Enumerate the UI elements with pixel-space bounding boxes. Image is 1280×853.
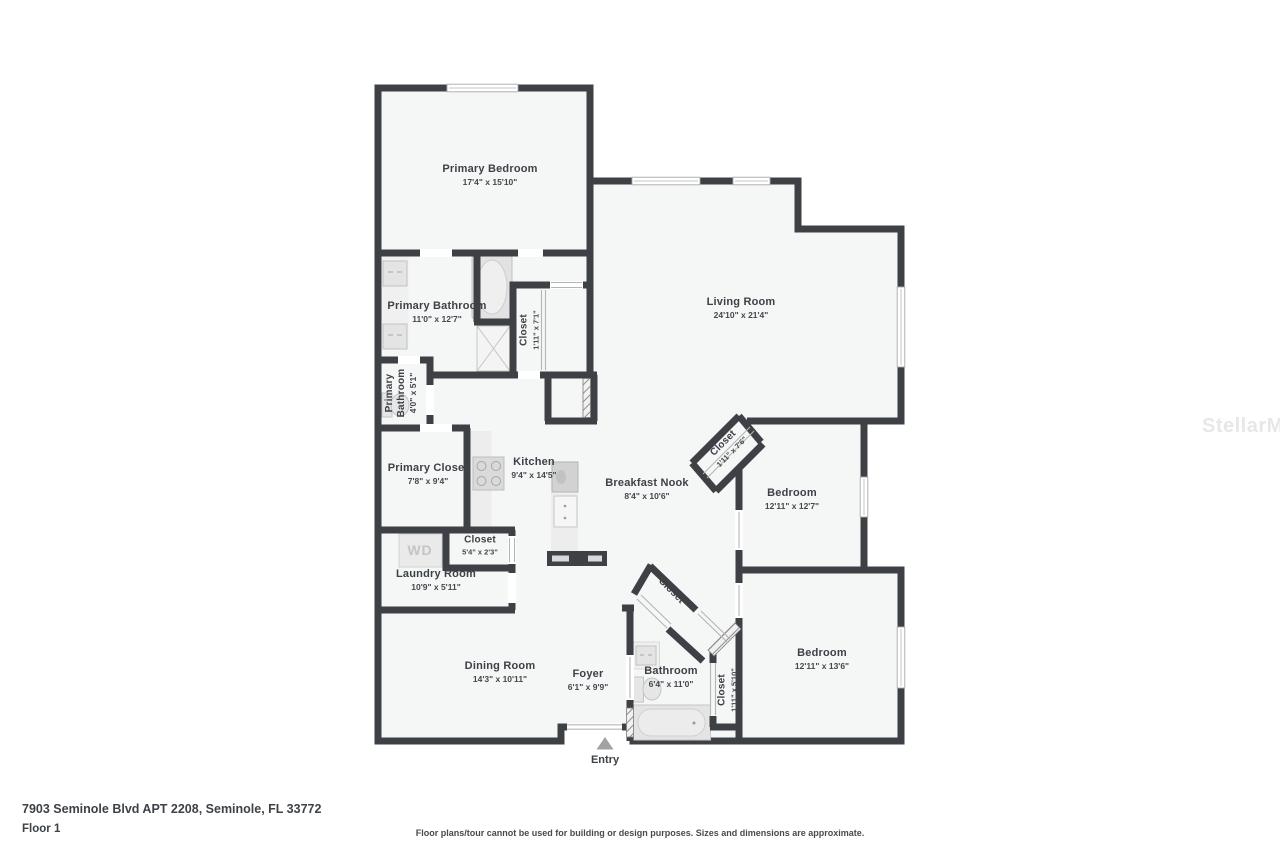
entry-arrow-icon [597, 737, 614, 750]
room-dims: 1'11" x 5'10" [729, 668, 738, 712]
room-name: Foyer [568, 668, 608, 681]
window [860, 477, 868, 517]
window [632, 177, 700, 185]
room-name: Breakfast Nook [605, 477, 689, 490]
room-label-closet-hall: Closet 1'11" x 7'1" [518, 310, 540, 349]
room-dims: 5'4" x 2'3" [462, 547, 498, 556]
room-label-primary-closet: Primary Closet 7'8" x 9'4" [388, 462, 468, 486]
room-label-closet-laundry: Closet 5'4" x 2'3" [462, 534, 498, 556]
room-dims: 9'4" x 14'5" [511, 470, 556, 480]
room-dims: 6'4" x 11'0" [644, 679, 698, 689]
room-label-laundry-room: Laundry Room 10'9" x 5'11" [396, 568, 476, 592]
room-dims: 24'10" x 21'4" [707, 310, 776, 320]
room-name: Primary Bedroom [442, 163, 537, 176]
stellar-mls-watermark: StellarMLS [1202, 415, 1280, 438]
room-label-primary-bedroom: Primary Bedroom 17'4" x 15'10" [442, 163, 537, 187]
room-dims: 17'4" x 15'10" [442, 177, 537, 187]
room-label-closet-bathroom-hall: Closet 1'11" x 5'10" [716, 668, 738, 712]
room-dims: 6'1" x 9'9" [568, 682, 608, 692]
room-label-foyer: Foyer 6'1" x 9'9" [568, 668, 608, 692]
kitchen-island [547, 551, 607, 566]
floorplan-drawing [0, 0, 1280, 853]
room-name: Primary Bathroom [387, 300, 486, 313]
room-dims: 8'4" x 10'6" [605, 491, 689, 501]
room-label-dining-room: Dining Room 14'3" x 10'11" [465, 660, 536, 684]
disclaimer-text: Floor plans/tour cannot be used for buil… [0, 828, 1280, 838]
window [897, 287, 905, 367]
room-label-bathroom: Bathroom 6'4" x 11'0" [644, 665, 698, 689]
bathtub [634, 705, 711, 740]
room-label-breakfast-nook: Breakfast Nook 8'4" x 10'6" [605, 477, 689, 501]
room-name: Primary Bathroom [384, 362, 407, 424]
room-name: Laundry Room [396, 568, 476, 581]
entry-label: Entry [591, 754, 619, 766]
property-address: 7903 Seminole Blvd APT 2208, Seminole, F… [22, 802, 321, 816]
room-name: Primary Closet [388, 462, 468, 475]
room-label-primary-bathroom: Primary Bathroom 11'0" x 12'7" [387, 300, 486, 324]
room-name: Bedroom [795, 647, 849, 660]
shower [477, 326, 510, 371]
room-dims: 10'9" x 5'11" [396, 582, 476, 592]
window [733, 177, 770, 185]
room-label-bedroom-1: Bedroom 12'11" x 12'7" [765, 487, 819, 511]
room-dims: 11'0" x 12'7" [387, 314, 486, 324]
room-dims: 12'11" x 13'6" [795, 661, 849, 671]
room-dims: 4'0" x 5'1" [408, 362, 418, 424]
room-dims: 1'11" x 7'1" [531, 310, 540, 349]
room-name: Closet [716, 668, 728, 712]
room-name: Closet [462, 534, 498, 546]
room-label-bedroom-2: Bedroom 12'11" x 13'6" [795, 647, 849, 671]
window [897, 627, 905, 688]
window [447, 84, 518, 92]
room-name: Living Room [707, 296, 776, 309]
kitchen-cooktop [473, 457, 504, 490]
washer-dryer-label: WD [407, 542, 432, 558]
room-dims: 12'11" x 12'7" [765, 501, 819, 511]
room-name: Kitchen [511, 456, 556, 469]
room-dims: 14'3" x 10'11" [465, 674, 536, 684]
kitchen-cabinet [554, 496, 577, 527]
room-label-kitchen: Kitchen 9'4" x 14'5" [511, 456, 556, 480]
room-name: Closet [518, 310, 530, 349]
room-name: Dining Room [465, 660, 536, 673]
room-dims: 7'8" x 9'4" [388, 476, 468, 486]
room-label-primary-bathroom-wc: Primary Bathroom 4'0" x 5'1" [384, 362, 418, 424]
floorplan-page: Primary Bedroom 17'4" x 15'10" Living Ro… [0, 0, 1280, 853]
room-label-living-room: Living Room 24'10" x 21'4" [707, 296, 776, 320]
room-name: Bedroom [765, 487, 819, 500]
room-name: Bathroom [644, 665, 698, 678]
